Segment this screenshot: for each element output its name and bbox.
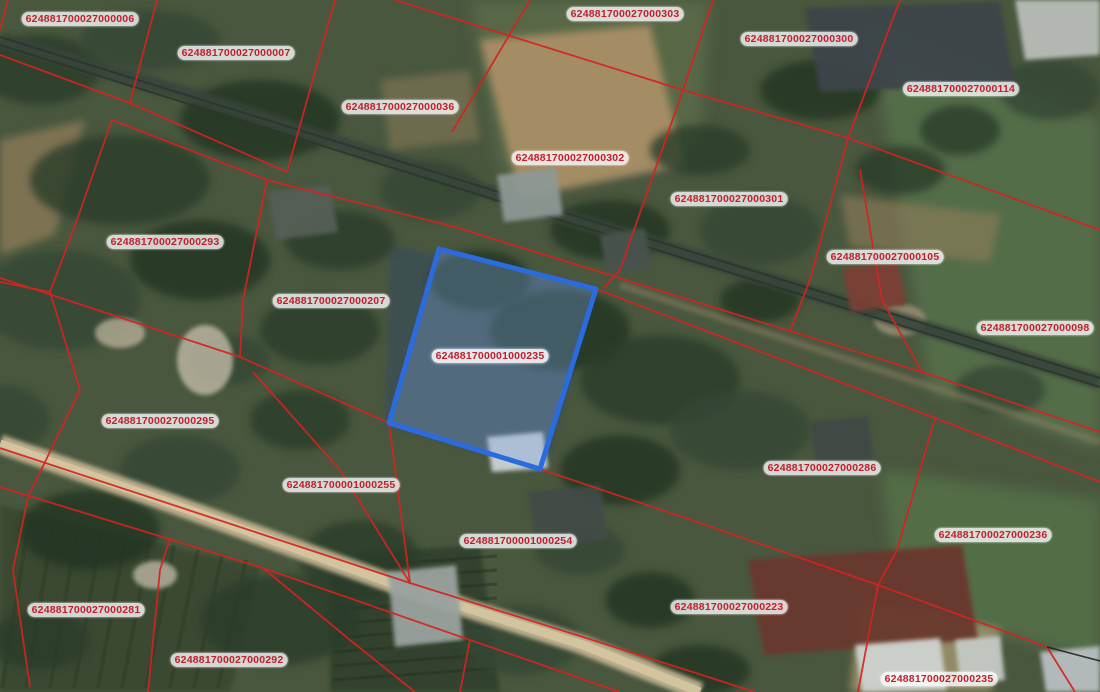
parcel-label[interactable]: 624881700027000114	[903, 82, 1019, 96]
parcel-boundary-line	[0, 0, 8, 30]
map-viewport[interactable]: 6248817000270000066248817000270000076248…	[0, 0, 1100, 692]
parcel-label[interactable]: 624881700001000255	[283, 478, 400, 492]
parcel-label[interactable]: 624881700027000281	[28, 603, 145, 617]
parcel-label[interactable]: 624881700027000293	[107, 235, 224, 249]
parcel-label[interactable]: 624881700027000105	[827, 250, 944, 264]
parcel-label[interactable]: 624881700027000207	[273, 294, 390, 308]
parcel-label[interactable]: 624881700027000286	[764, 461, 881, 475]
parcel-label[interactable]: 624881700027000301	[671, 192, 788, 206]
parcel-label[interactable]: 624881700027000223	[671, 600, 788, 614]
parcel-label[interactable]: 624881700027000235	[881, 672, 998, 686]
parcel-label[interactable]: 624881700027000098	[977, 321, 1094, 335]
parcel-label[interactable]: 624881700027000236	[935, 528, 1052, 542]
parcel-label[interactable]: 624881700027000006	[22, 12, 139, 26]
parcel-label[interactable]: 624881700027000303	[567, 7, 684, 21]
satellite-base	[0, 0, 1100, 692]
parcel-label[interactable]: 624881700027000300	[741, 32, 858, 46]
parcel-label[interactable]: 624881700027000036	[342, 100, 459, 114]
parcel-label[interactable]: 624881700027000302	[512, 151, 629, 165]
parcel-label[interactable]: 624881700027000007	[178, 46, 295, 60]
parcel-label[interactable]: 624881700027000295	[102, 414, 219, 428]
highlighted-parcel-label[interactable]: 624881700001000235	[432, 349, 549, 363]
parcel-label[interactable]: 624881700001000254	[460, 534, 577, 548]
parcel-label[interactable]: 624881700027000292	[171, 653, 288, 667]
